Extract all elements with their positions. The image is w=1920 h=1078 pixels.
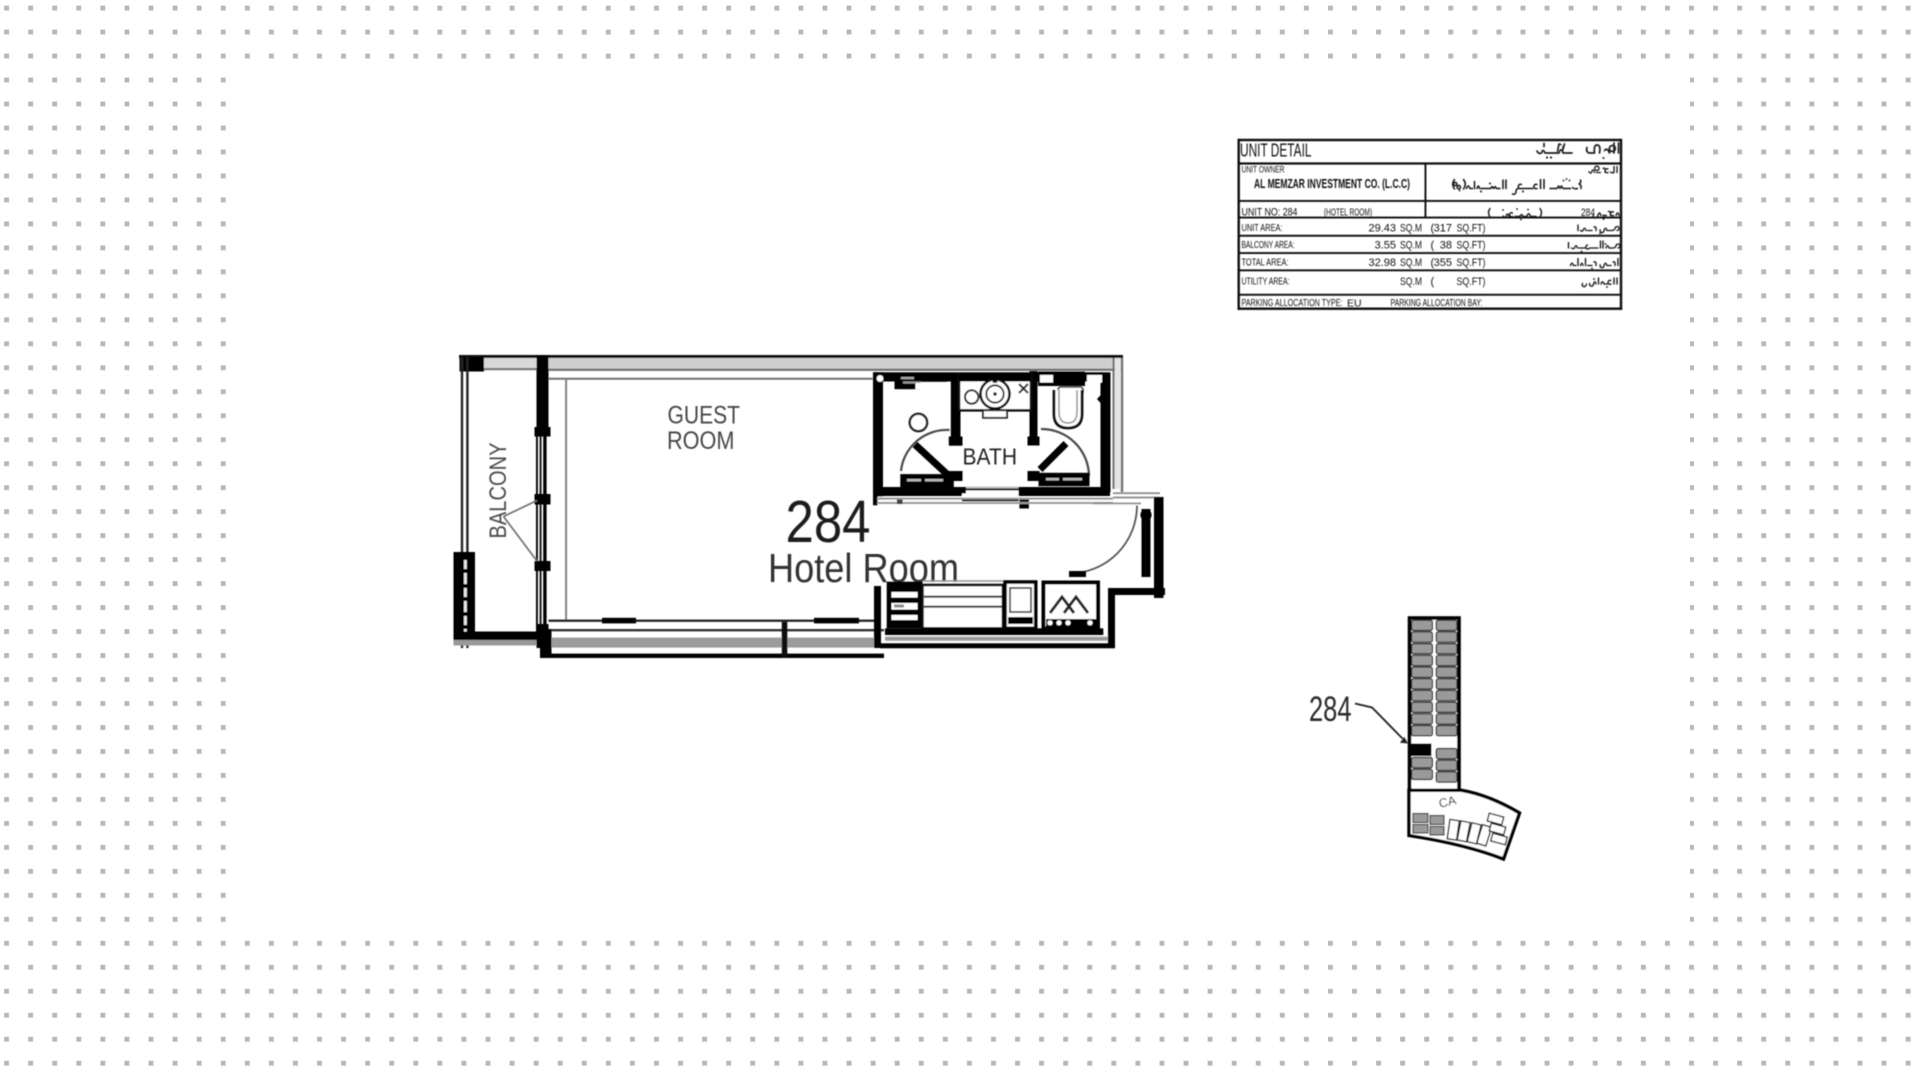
svg-text:SQ.M: SQ.M bbox=[1400, 276, 1422, 288]
svg-text:UNIT AREA:: UNIT AREA: bbox=[1242, 222, 1283, 234]
svg-text:BALCONY AREA:: BALCONY AREA: bbox=[1242, 239, 1295, 251]
svg-text:SQ.M: SQ.M bbox=[1400, 257, 1422, 269]
svg-text:(: ( bbox=[1431, 276, 1435, 288]
svg-text:SQ.FT): SQ.FT) bbox=[1457, 257, 1486, 269]
svg-text:29.43: 29.43 bbox=[1368, 222, 1396, 234]
svg-text:SQ.M: SQ.M bbox=[1400, 222, 1422, 234]
svg-text:SQ.M: SQ.M bbox=[1400, 240, 1422, 252]
svg-text:GUEST: GUEST bbox=[668, 402, 741, 430]
svg-text:ROOM: ROOM bbox=[667, 427, 735, 455]
svg-text:3.55: 3.55 bbox=[1375, 240, 1396, 252]
svg-text:UNIT DETAIL: UNIT DETAIL bbox=[1240, 141, 1312, 161]
svg-text:TOTAL AREA:: TOTAL AREA: bbox=[1242, 257, 1289, 269]
svg-text:355: 355 bbox=[1434, 257, 1452, 269]
svg-text:32.98: 32.98 bbox=[1368, 257, 1396, 269]
svg-text:BATH: BATH bbox=[963, 444, 1018, 470]
svg-text:284: 284 bbox=[1309, 689, 1352, 729]
svg-text:EU: EU bbox=[1347, 298, 1362, 310]
svg-text:317: 317 bbox=[1434, 222, 1452, 234]
svg-text:(HOTEL ROOM): (HOTEL ROOM) bbox=[1324, 207, 1372, 219]
svg-text:PARKING ALLOCATION TYPE:: PARKING ALLOCATION TYPE: bbox=[1242, 298, 1343, 309]
svg-text:PARKING ALLOCATION BAY:: PARKING ALLOCATION BAY: bbox=[1391, 298, 1483, 309]
svg-text:AL MEMZAR INVESTMENT CO. (L.C.: AL MEMZAR INVESTMENT CO. (L.C.C) bbox=[1254, 177, 1410, 191]
svg-text:UNIT NO: 284: UNIT NO: 284 bbox=[1242, 207, 1298, 219]
svg-text:38: 38 bbox=[1440, 240, 1452, 252]
svg-text:(: ( bbox=[1431, 240, 1435, 252]
svg-text:SQ.FT): SQ.FT) bbox=[1457, 240, 1486, 252]
svg-text:UNIT OWNER: UNIT OWNER bbox=[1242, 165, 1285, 175]
svg-text:SQ.FT): SQ.FT) bbox=[1457, 222, 1486, 234]
svg-text:SQ.FT): SQ.FT) bbox=[1457, 276, 1486, 288]
svg-text:BALCONY: BALCONY bbox=[485, 443, 512, 539]
svg-text:UTILITY AREA:: UTILITY AREA: bbox=[1242, 275, 1290, 287]
